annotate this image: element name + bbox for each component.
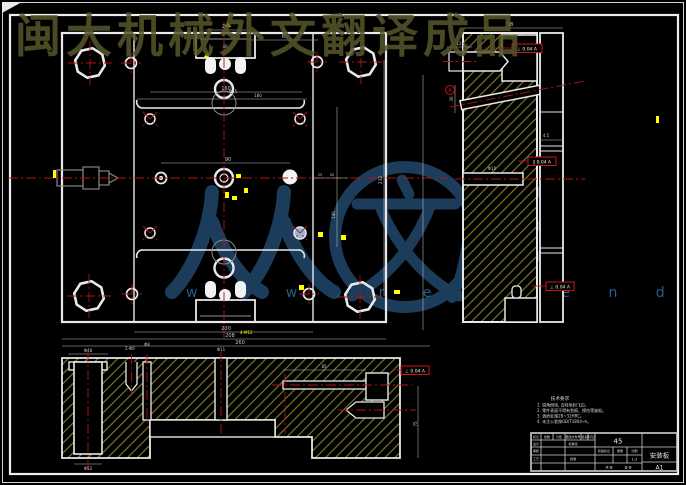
svg-text:共 张: 共 张: [606, 465, 613, 470]
gdt-frame-bottom-view: ⊥ 0.04 A: [396, 366, 429, 375]
drawing-canvas: w w w . r e n r e n d o c . c o m: [0, 0, 686, 485]
svg-text:Φ10: Φ10: [488, 166, 497, 171]
svg-text:设计: 设计: [533, 441, 539, 446]
svg-text:260: 260: [235, 340, 245, 346]
svg-text:阶段标记: 阶段标记: [598, 448, 610, 453]
svg-text:140: 140: [331, 211, 336, 219]
svg-text:3. 调质处理28~32HRC。: 3. 调质处理28~32HRC。: [537, 413, 584, 419]
svg-text:2-Φ6: 2-Φ6: [125, 346, 135, 351]
gdt-frame-4: ⊥ 0.04 A: [405, 369, 426, 375]
svg-text:4.5: 4.5: [543, 133, 550, 138]
top-watermark-text: 闽大机械外文翻译成品: [15, 9, 525, 63]
svg-text:25: 25: [318, 173, 322, 177]
svg-text:1. 锐角倒钝, 去除毛刺飞边。: 1. 锐角倒钝, 去除毛刺飞边。: [537, 402, 589, 408]
bottom-section-view: [62, 354, 418, 464]
main-plan-view: [57, 33, 386, 322]
svg-text:40: 40: [330, 173, 334, 177]
gdt-frame-2: ∥ 0.04 A: [533, 160, 552, 166]
svg-text:比例: 比例: [631, 448, 637, 453]
svg-text:Φ48: Φ48: [84, 348, 93, 353]
svg-text:处数: 处数: [544, 434, 550, 439]
svg-text:批准: 批准: [570, 456, 576, 461]
svg-text:75: 75: [413, 421, 418, 427]
thread-callout: 4-M12: [240, 330, 253, 335]
svg-text:标准化: 标准化: [568, 441, 577, 446]
scale-value: 1:2: [632, 458, 638, 462]
center-row-hole: [283, 170, 298, 185]
cad-drawing-page: w w w . r e n r e n d o c . c o m: [0, 0, 686, 485]
sheet-size: A1: [656, 465, 664, 472]
notes-heading: 技术要求: [551, 395, 570, 402]
bottom-pin-right: [235, 281, 246, 298]
datum-label: A: [448, 88, 452, 94]
part-name: 安装板: [650, 451, 670, 460]
svg-text:30: 30: [449, 96, 454, 102]
svg-text:标记: 标记: [533, 434, 539, 439]
svg-text:208: 208: [225, 333, 235, 339]
svg-text:第 张: 第 张: [625, 465, 632, 470]
svg-text:4. 未注公差按GB/T1804-m。: 4. 未注公差按GB/T1804-m。: [537, 418, 591, 424]
bottom-pin-left: [205, 281, 216, 298]
svg-text:分区: 分区: [556, 434, 562, 439]
svg-text:Φ11: Φ11: [217, 347, 226, 352]
svg-text:质量: 质量: [617, 448, 623, 453]
svg-text:工艺: 工艺: [533, 456, 539, 461]
svg-text:200: 200: [221, 326, 231, 332]
svg-text:审核: 审核: [533, 448, 539, 453]
material-grade: 45: [614, 438, 623, 446]
svg-text:232: 232: [378, 176, 384, 185]
technical-notes: 技术要求 1. 锐角倒钝, 去除毛刺飞边。 2. 零件表面不得有划痕、擦伤等缺陷…: [537, 395, 606, 424]
svg-text:Φ25: Φ25: [229, 89, 238, 94]
renrendoc-url-watermark: w w w . r e n r e n d o c . c o m: [186, 285, 686, 301]
svg-text:Φ8: Φ8: [144, 342, 150, 347]
svg-text:180: 180: [254, 93, 262, 98]
svg-text:2. 零件表面不得有划痕、擦伤等缺陷。: 2. 零件表面不得有划痕、擦伤等缺陷。: [537, 407, 606, 413]
svg-text:更改文件号: 更改文件号: [565, 434, 580, 439]
svg-text:年月日: 年月日: [587, 434, 596, 439]
right-section-view: [447, 28, 563, 322]
gdt-frame-3: ⊥ 0.04 A: [550, 285, 571, 291]
svg-text:90: 90: [225, 157, 231, 163]
svg-text:85: 85: [321, 364, 327, 369]
svg-text:Φ52: Φ52: [84, 466, 93, 471]
